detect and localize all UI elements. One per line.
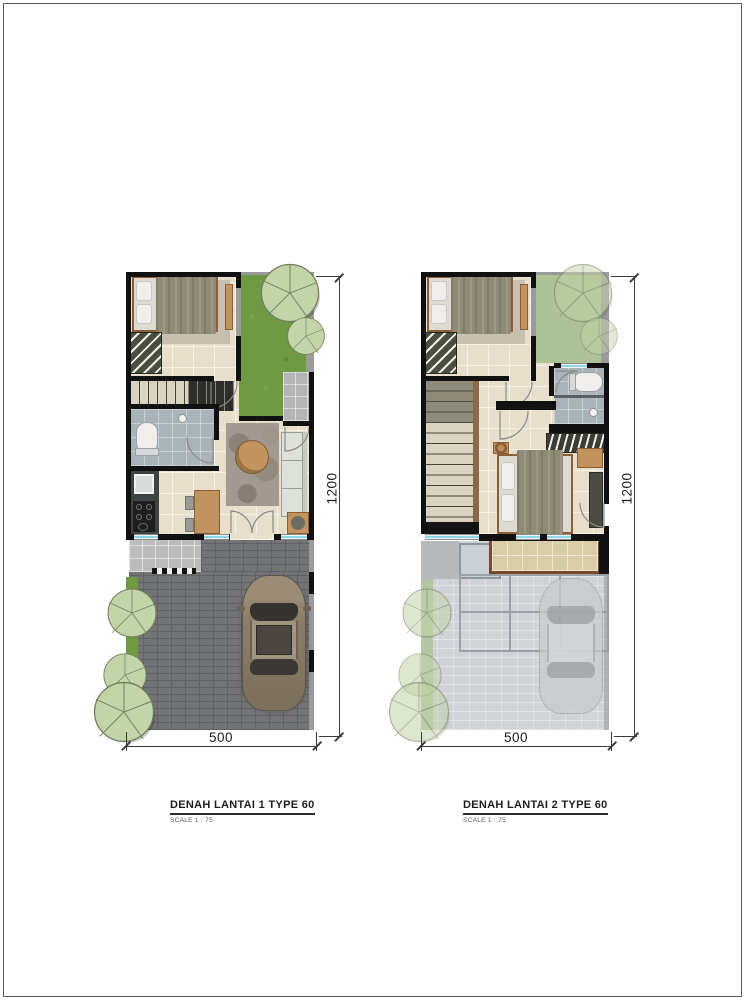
wall-bathroom-left xyxy=(549,366,554,396)
car-rear-window xyxy=(250,659,298,675)
master-door-arc xyxy=(499,410,529,440)
wall-hall-stub xyxy=(496,401,556,410)
wardrobe xyxy=(423,332,457,374)
dim-width-label: 500 xyxy=(126,730,316,745)
wall-right xyxy=(309,372,314,540)
wall-top xyxy=(421,272,536,277)
car-rear-window-faded xyxy=(547,662,595,678)
dining-window xyxy=(204,534,229,540)
balcony-corner-wall xyxy=(599,541,609,574)
burner-icon xyxy=(136,514,142,520)
burner-icon xyxy=(146,514,152,520)
wall-bedroom-bottom xyxy=(126,376,214,381)
lamp-icon xyxy=(495,442,507,454)
divider-window xyxy=(236,288,241,336)
pillow xyxy=(501,494,515,522)
wall-bathroom-bottom xyxy=(549,424,609,433)
shower-drain-icon xyxy=(589,408,598,417)
void-edge xyxy=(425,522,479,534)
wall-left xyxy=(421,272,426,534)
car-windshield-faded xyxy=(547,606,595,624)
tree-icon xyxy=(552,262,614,324)
drawing-sheet: 500 1200 xyxy=(3,3,742,997)
wall-top xyxy=(126,272,241,277)
carport-pavers xyxy=(201,540,314,572)
bedroom2-window xyxy=(516,534,540,540)
shower-head-icon xyxy=(178,414,187,423)
pillow xyxy=(136,304,152,324)
bathroom-window xyxy=(561,363,587,368)
pillow xyxy=(136,281,152,301)
tree-icon xyxy=(286,316,326,356)
plan2-title-block: DENAH LANTAI 2 TYPE 60 SCALE 1 : 75 xyxy=(463,795,608,824)
pillow xyxy=(431,304,447,324)
porch-roof-faded xyxy=(421,541,459,579)
car-roof-faded xyxy=(547,624,595,662)
tree-icon xyxy=(259,262,321,324)
tree-icon xyxy=(579,316,619,356)
pillow xyxy=(431,281,447,301)
plan1-title: DENAH LANTAI 1 TYPE 60 xyxy=(170,799,315,815)
wall-bathroom-bottom xyxy=(130,466,219,471)
tree-icon xyxy=(401,587,453,639)
dining-table xyxy=(194,490,220,534)
floor-plan-lantai-2: 500 1200 xyxy=(421,272,611,730)
plan1-title-block: DENAH LANTAI 1 TYPE 60 SCALE 1 : 75 xyxy=(170,795,315,824)
void-railing-window xyxy=(425,534,479,540)
bed-blanket xyxy=(156,274,216,334)
balcony-door-arc xyxy=(579,502,605,528)
dim-height-label: 1200 xyxy=(620,468,635,510)
wall-bathroom-right xyxy=(214,404,219,440)
burner-icon xyxy=(146,504,152,510)
dim-width-label: 500 xyxy=(421,730,611,745)
burner-icon xyxy=(138,523,148,531)
dim-line-width xyxy=(421,746,612,747)
dim-extension-line xyxy=(316,732,317,751)
terrace-step-band xyxy=(152,568,196,574)
dining-chair xyxy=(185,496,194,510)
toilet-tank xyxy=(135,448,159,456)
bedroom-dresser xyxy=(520,284,528,330)
living-window xyxy=(281,534,307,540)
tree-icon xyxy=(106,587,158,639)
wardrobe xyxy=(128,332,162,374)
main-door-opening xyxy=(230,534,274,540)
car-windshield xyxy=(250,603,298,621)
car-sunroof xyxy=(256,625,292,655)
carport-side-wall xyxy=(309,540,314,730)
plan2-title: DENAH LANTAI 2 TYPE 60 xyxy=(463,799,608,815)
coffee-table-icon xyxy=(235,440,269,474)
plan1-scale: SCALE 1 : 75 xyxy=(170,817,315,824)
kitchen-window xyxy=(134,534,158,540)
dim-extension-line xyxy=(611,732,612,751)
staircase-upper-flight xyxy=(425,381,479,423)
burner-icon xyxy=(136,504,142,510)
balcony-floor xyxy=(489,541,601,574)
bedroom2-window xyxy=(547,534,571,540)
main-double-door-arcs xyxy=(230,510,274,534)
shower-divider xyxy=(554,395,604,398)
dim-height-label: 1200 xyxy=(325,468,340,510)
wall-segment xyxy=(309,572,314,594)
wall-bedroom2-bottom xyxy=(479,534,609,541)
stair-stringer xyxy=(473,381,479,528)
plant-icon xyxy=(291,516,305,530)
carport-side-wall-faded xyxy=(604,574,609,730)
wall-bathroom-top xyxy=(130,404,219,409)
bedroom-dresser xyxy=(225,284,233,330)
desk xyxy=(577,448,603,468)
bathroom-door-arc xyxy=(186,436,214,464)
plan2-scale: SCALE 1 : 75 xyxy=(463,817,608,824)
car-mirror xyxy=(303,606,311,611)
wall-right xyxy=(604,363,609,504)
bed-blanket xyxy=(451,274,511,334)
kitchen-sink-icon xyxy=(134,474,154,494)
dim-line-width xyxy=(126,746,317,747)
wall-segment xyxy=(309,650,314,672)
wall-garden-bottom xyxy=(239,416,283,421)
car-mirror xyxy=(237,606,245,611)
floor-plan-lantai-1: 500 1200 xyxy=(126,272,316,730)
wall-bedroom-bottom xyxy=(421,376,509,381)
pillow xyxy=(501,462,515,490)
dining-chair xyxy=(185,518,194,532)
divider-window xyxy=(531,288,536,336)
master-bed-blanket xyxy=(517,450,563,538)
bathroom-door-arc xyxy=(555,370,579,394)
entry-door-arc xyxy=(284,426,310,452)
